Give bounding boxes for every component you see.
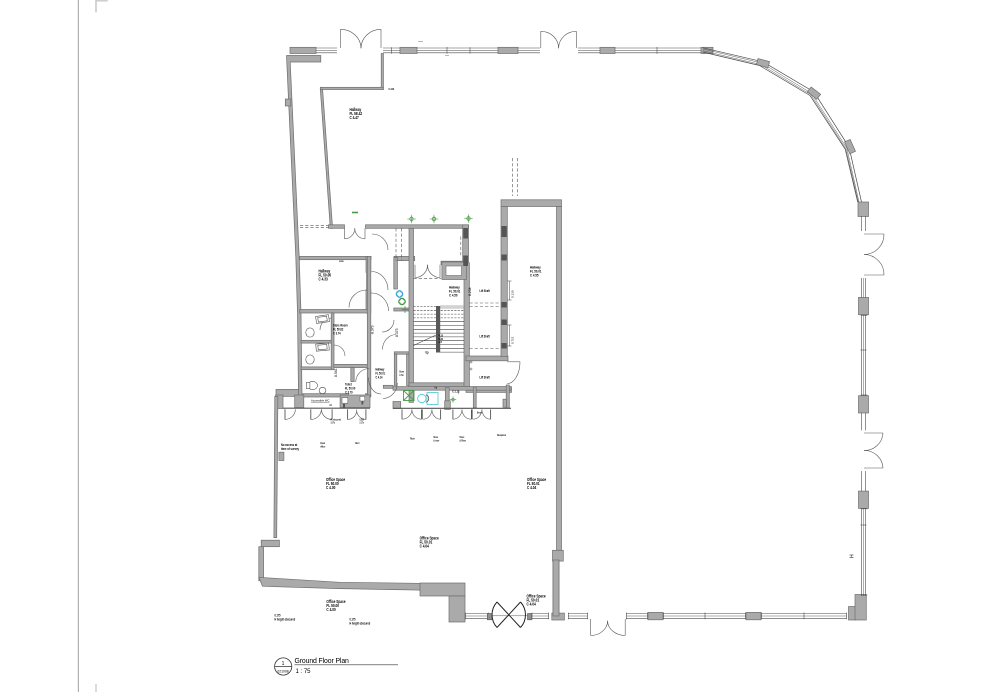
svg-text:C 4.14: C 4.14: [376, 375, 383, 380]
svg-text:C 2.1g: C 2.1g: [452, 389, 459, 394]
svg-text:C 3.74: C 3.74: [333, 331, 341, 336]
svg-text:0.443: 0.443: [389, 87, 395, 92]
svg-text:Lift Shaft: Lift Shaft: [479, 334, 489, 339]
svg-text:H: H: [850, 554, 856, 558]
svg-text:021008: 021008: [277, 669, 288, 673]
svg-text:Ground Floor Plan: Ground Floor Plan: [295, 658, 350, 665]
svg-text:C 4.47: C 4.47: [349, 116, 358, 121]
svg-text:Accessible WC: Accessible WC: [311, 399, 330, 403]
svg-text:C 4.55: C 4.55: [530, 273, 539, 278]
svg-text:Lift Shaft: Lift Shaft: [479, 289, 489, 294]
svg-text:2.17x: 2.17x: [331, 423, 336, 425]
svg-text:8.234: 8.234: [468, 287, 472, 296]
svg-text:8.373: 8.373: [371, 325, 375, 334]
svg-text:1 : 75: 1 : 75: [296, 669, 312, 675]
svg-text:Up: Up: [425, 350, 428, 355]
svg-text:C 4.50: C 4.50: [449, 293, 458, 298]
svg-text:2.17x: 2.17x: [359, 423, 364, 425]
svg-text:Open: Open: [320, 443, 325, 445]
svg-text:C 4.00: C 4.00: [326, 608, 335, 613]
svg-text:office: office: [320, 446, 326, 448]
svg-text:C 4.04: C 4.04: [420, 544, 430, 549]
svg-text:H height obscured: H height obscured: [349, 621, 370, 626]
svg-text:C 4.00: C 4.00: [326, 486, 335, 491]
svg-text:C 4.04: C 4.04: [527, 602, 537, 607]
svg-text:H height obscured: H height obscured: [275, 617, 296, 622]
svg-text:8.541: 8.541: [334, 368, 338, 377]
svg-text:xxxxx: xxxxx: [339, 261, 344, 263]
svg-text:1: 1: [282, 661, 285, 667]
svg-text:Lift Shaft: Lift Shaft: [479, 375, 489, 380]
svg-text:50.66: 50.66: [439, 339, 444, 341]
svg-text:0.721: 0.721: [511, 336, 515, 344]
svg-text:8.373: 8.373: [395, 328, 399, 337]
svg-text:C 4.33: C 4.33: [318, 277, 327, 282]
svg-text:C 3.79: C 3.79: [345, 390, 353, 395]
svg-text:0.130: 0.130: [511, 290, 515, 298]
svg-text:FL 50: FL 50: [439, 335, 444, 337]
svg-text:time of survey: time of survey: [281, 446, 299, 451]
svg-text:0.300: 0.300: [359, 419, 364, 421]
svg-text:42: 42: [329, 403, 333, 407]
svg-text:C 4.04: C 4.04: [527, 486, 537, 491]
